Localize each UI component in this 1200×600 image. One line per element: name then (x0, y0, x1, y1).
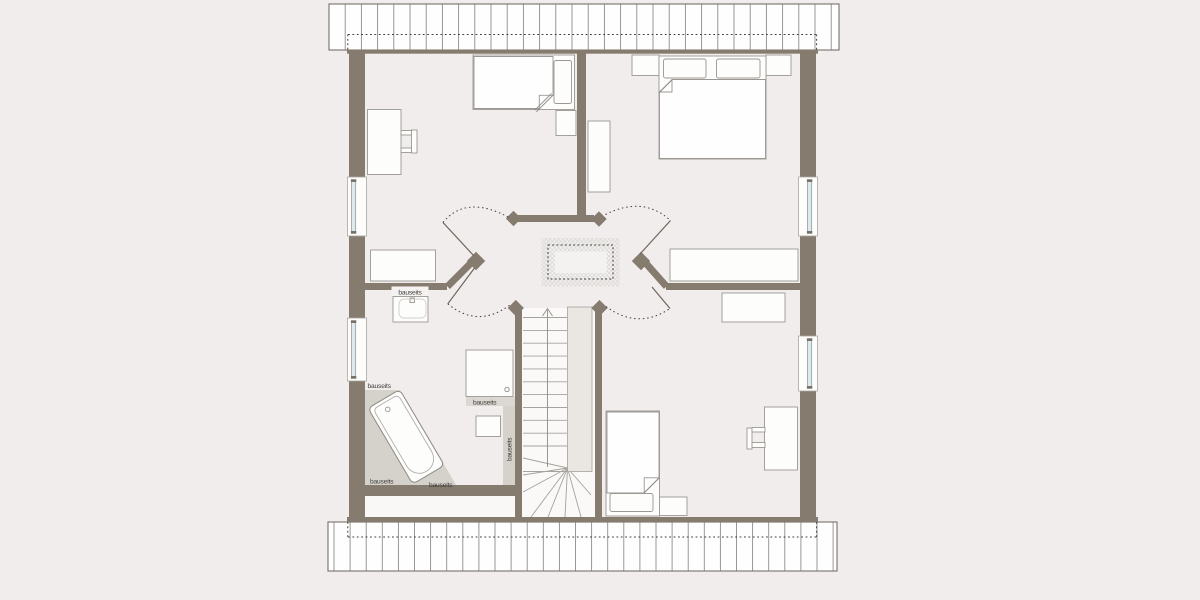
svg-text:bauseits: bauseits (473, 400, 497, 407)
svg-text:bauseits: bauseits (507, 437, 514, 461)
svg-text:bauseits: bauseits (370, 479, 394, 486)
svg-text:bauseits: bauseits (398, 289, 422, 296)
svg-text:bauseits: bauseits (368, 383, 392, 390)
svg-text:bauseits: bauseits (429, 482, 453, 489)
